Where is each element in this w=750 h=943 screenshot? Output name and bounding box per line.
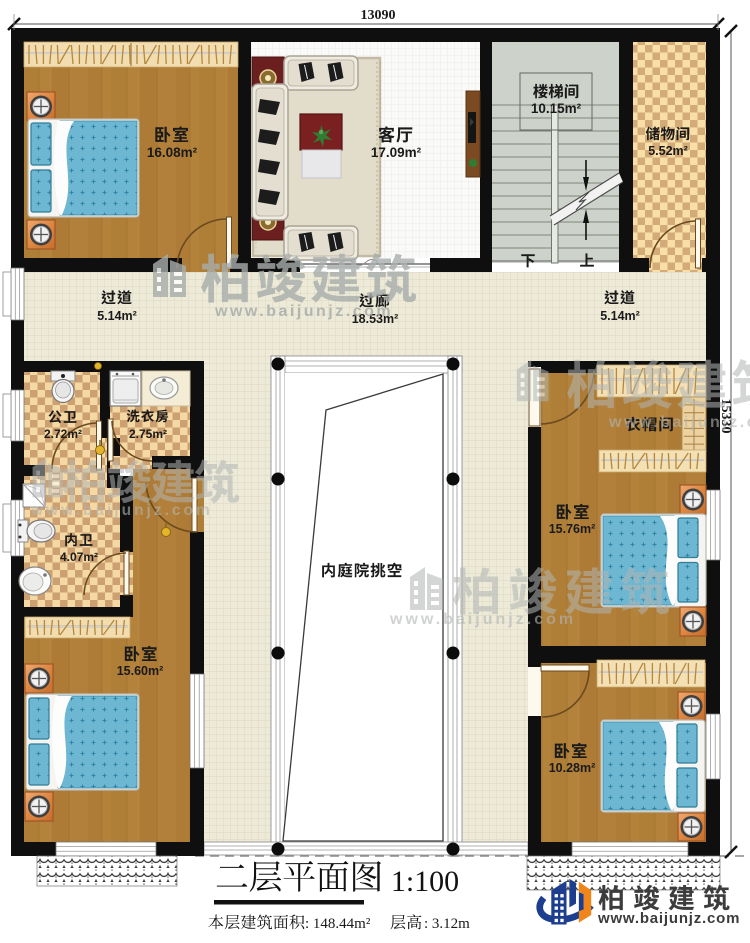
svg-text:www.baijunjz.com: www.baijunjz.com [30,502,213,519]
svg-text:15.60m²: 15.60m² [117,664,164,678]
svg-text:www.baijunjz.com: www.baijunjz.com [389,611,576,628]
svg-text:4.07m²: 4.07m² [60,550,98,564]
svg-text:1:100: 1:100 [391,865,459,898]
svg-text:www.baijunjz.com: www.baijunjz.com [597,910,740,927]
svg-text:17.09m²: 17.09m² [371,145,422,160]
svg-text:15.76m²: 15.76m² [549,522,596,536]
svg-text:5.14m²: 5.14m² [97,309,137,323]
svg-text:2.75m²: 2.75m² [129,427,167,441]
svg-text:5.14m²: 5.14m² [600,309,640,323]
svg-text:10.15m²: 10.15m² [531,101,582,116]
svg-text:13090: 13090 [361,8,396,23]
svg-text:: 3.12m: : 3.12m [424,916,470,932]
svg-text:16.08m²: 16.08m² [147,145,198,160]
svg-text:www.baijunjz.com: www.baijunjz.com [608,414,750,431]
svg-text:: 148.44m²: : 148.44m² [305,916,371,932]
svg-text:2.72m²: 2.72m² [44,427,82,441]
svg-text:www.baijunjz.com: www.baijunjz.com [214,303,393,320]
svg-text:5.52m²: 5.52m² [648,144,688,158]
svg-text:10.28m²: 10.28m² [549,761,596,775]
